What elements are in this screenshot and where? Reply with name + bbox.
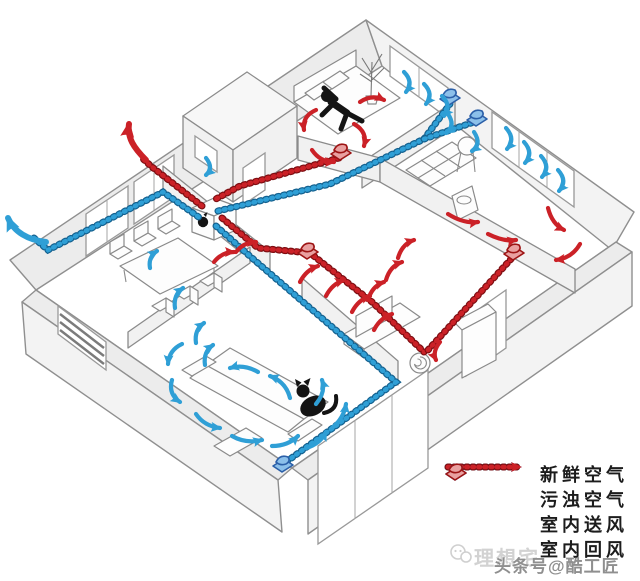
home-ventilation-diagram: 新鲜空气 污浊空气 室内送风 室内回风 理想宅 头条号@酷工匠 [0,0,640,581]
legend-label: 污浊空气 [540,486,628,512]
watermark: 理想宅 头条号@酷工匠 [450,540,640,580]
watermark-dark-text: 头条号@酷工匠 [494,552,620,577]
legend-label: 室内送风 [540,511,628,537]
exhaust-outlet-arrow [129,124,146,160]
legend-item-polluted-air: 污浊空气 [444,486,628,511]
fresh-air-intake-arrow [8,218,46,242]
legend-item-supply: 室内送风 [444,511,628,536]
exhaust-fan [410,353,430,373]
legend-label: 新鲜空气 [540,461,628,487]
